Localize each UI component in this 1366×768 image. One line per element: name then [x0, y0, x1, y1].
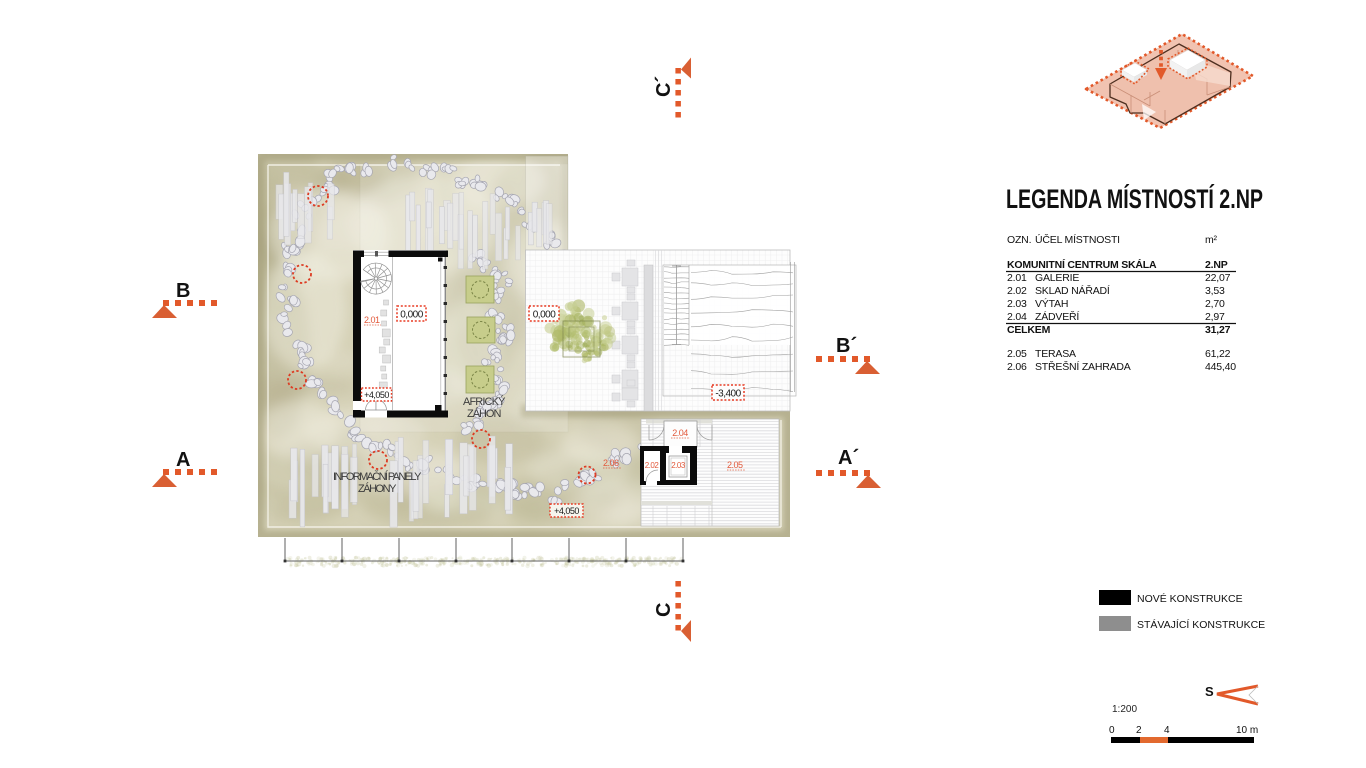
svg-text:+4,050: +4,050 [364, 390, 389, 400]
svg-text:2.01: 2.01 [1007, 272, 1027, 284]
svg-text:S: S [1205, 684, 1214, 699]
svg-text:ZÁHON: ZÁHON [467, 407, 501, 420]
svg-text:0: 0 [1109, 725, 1115, 736]
svg-text:2.02: 2.02 [645, 461, 660, 470]
svg-text:A: A [176, 449, 190, 471]
svg-text:2,70: 2,70 [1205, 298, 1225, 310]
svg-text:INFORMAČNÍ PANELY: INFORMAČNÍ PANELY [333, 470, 422, 483]
svg-text:AFRICKÝ: AFRICKÝ [463, 395, 506, 408]
svg-text:0,000: 0,000 [400, 310, 423, 321]
svg-text:B´: B´ [836, 335, 857, 357]
svg-text:C´: C´ [653, 76, 675, 97]
svg-text:2,97: 2,97 [1205, 311, 1225, 323]
svg-text:C: C [653, 603, 675, 617]
svg-text:TERASA: TERASA [1035, 348, 1076, 360]
svg-text:4: 4 [1164, 725, 1170, 736]
svg-text:ZÁDVEŘÍ: ZÁDVEŘÍ [1035, 310, 1079, 323]
svg-text:A´: A´ [838, 447, 859, 469]
svg-text:2: 2 [1136, 725, 1142, 736]
svg-text:SKLAD NÁŘADÍ: SKLAD NÁŘADÍ [1035, 284, 1110, 297]
svg-text:2.05: 2.05 [727, 460, 743, 470]
svg-text:STÁVAJÍCÍ KONSTRUKCE: STÁVAJÍCÍ KONSTRUKCE [1137, 618, 1265, 631]
svg-text:0,000: 0,000 [533, 310, 556, 321]
svg-text:OZN.: OZN. [1007, 234, 1031, 246]
svg-text:2.04: 2.04 [672, 428, 688, 438]
svg-text:3,53: 3,53 [1205, 285, 1225, 297]
svg-text:ZÁHONY: ZÁHONY [358, 482, 397, 495]
svg-text:2.01: 2.01 [364, 315, 380, 325]
svg-text:B: B [176, 280, 190, 302]
svg-text:61,22: 61,22 [1205, 348, 1231, 360]
svg-text:+4,050: +4,050 [554, 506, 579, 516]
svg-text:10 m: 10 m [1236, 725, 1258, 736]
svg-text:NOVÉ KONSTRUKCE: NOVÉ KONSTRUKCE [1137, 592, 1243, 605]
svg-text:445,40: 445,40 [1205, 361, 1236, 373]
svg-text:m²: m² [1205, 234, 1218, 246]
svg-text:LEGENDA MÍSTNOSTÍ 2.NP: LEGENDA MÍSTNOSTÍ 2.NP [1006, 183, 1263, 214]
svg-text:22,07: 22,07 [1205, 272, 1231, 284]
svg-text:1:200: 1:200 [1112, 704, 1137, 715]
svg-text:31,27: 31,27 [1205, 324, 1231, 336]
svg-text:2.06: 2.06 [1007, 361, 1027, 373]
svg-text:2.02: 2.02 [1007, 285, 1027, 297]
svg-text:2.NP: 2.NP [1205, 259, 1228, 271]
svg-text:VÝTAH: VÝTAH [1035, 297, 1068, 310]
svg-text:2.03: 2.03 [1007, 298, 1027, 310]
svg-text:CELKEM: CELKEM [1007, 324, 1051, 336]
svg-text:GALERIE: GALERIE [1035, 272, 1079, 284]
svg-text:STŘEŠNÍ ZAHRADA: STŘEŠNÍ ZAHRADA [1035, 360, 1131, 373]
svg-text:-3,400: -3,400 [715, 389, 741, 400]
svg-text:2.04: 2.04 [1007, 311, 1027, 323]
svg-text:ÚČEL MÍSTNOSTI: ÚČEL MÍSTNOSTI [1035, 233, 1120, 246]
svg-text:2.05: 2.05 [1007, 348, 1027, 360]
svg-text:2.03: 2.03 [671, 461, 686, 470]
svg-text:KOMUNITNÍ CENTRUM SKÁLA: KOMUNITNÍ CENTRUM SKÁLA [1007, 258, 1157, 271]
svg-text:2.06: 2.06 [603, 458, 619, 468]
